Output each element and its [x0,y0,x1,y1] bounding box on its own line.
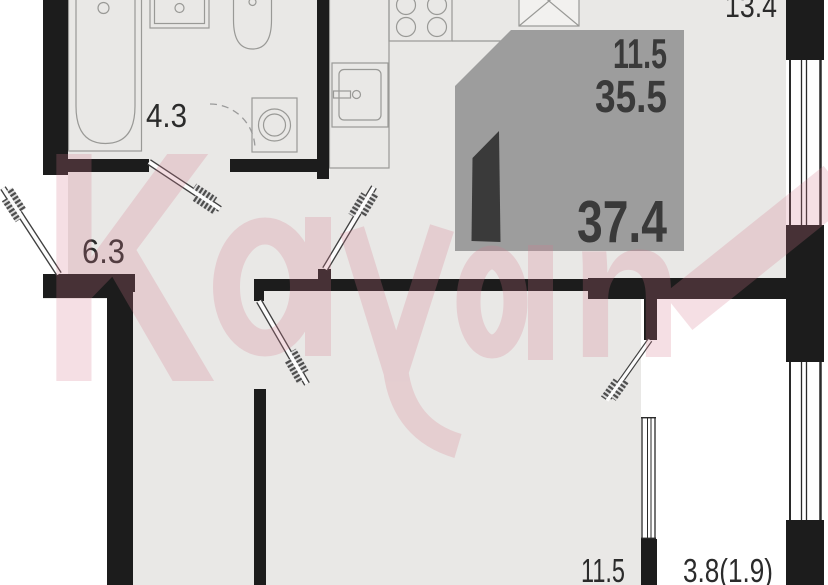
svg-text:n: n [570,176,682,400]
svg-text:11.5: 11.5 [581,552,625,585]
svg-text:11.5: 11.5 [613,30,667,77]
svg-text:K: K [40,82,216,451]
svg-text:3.8(1.9): 3.8(1.9) [683,552,773,585]
svg-text:13.4: 13.4 [725,0,777,24]
svg-text:35.5: 35.5 [595,71,667,122]
